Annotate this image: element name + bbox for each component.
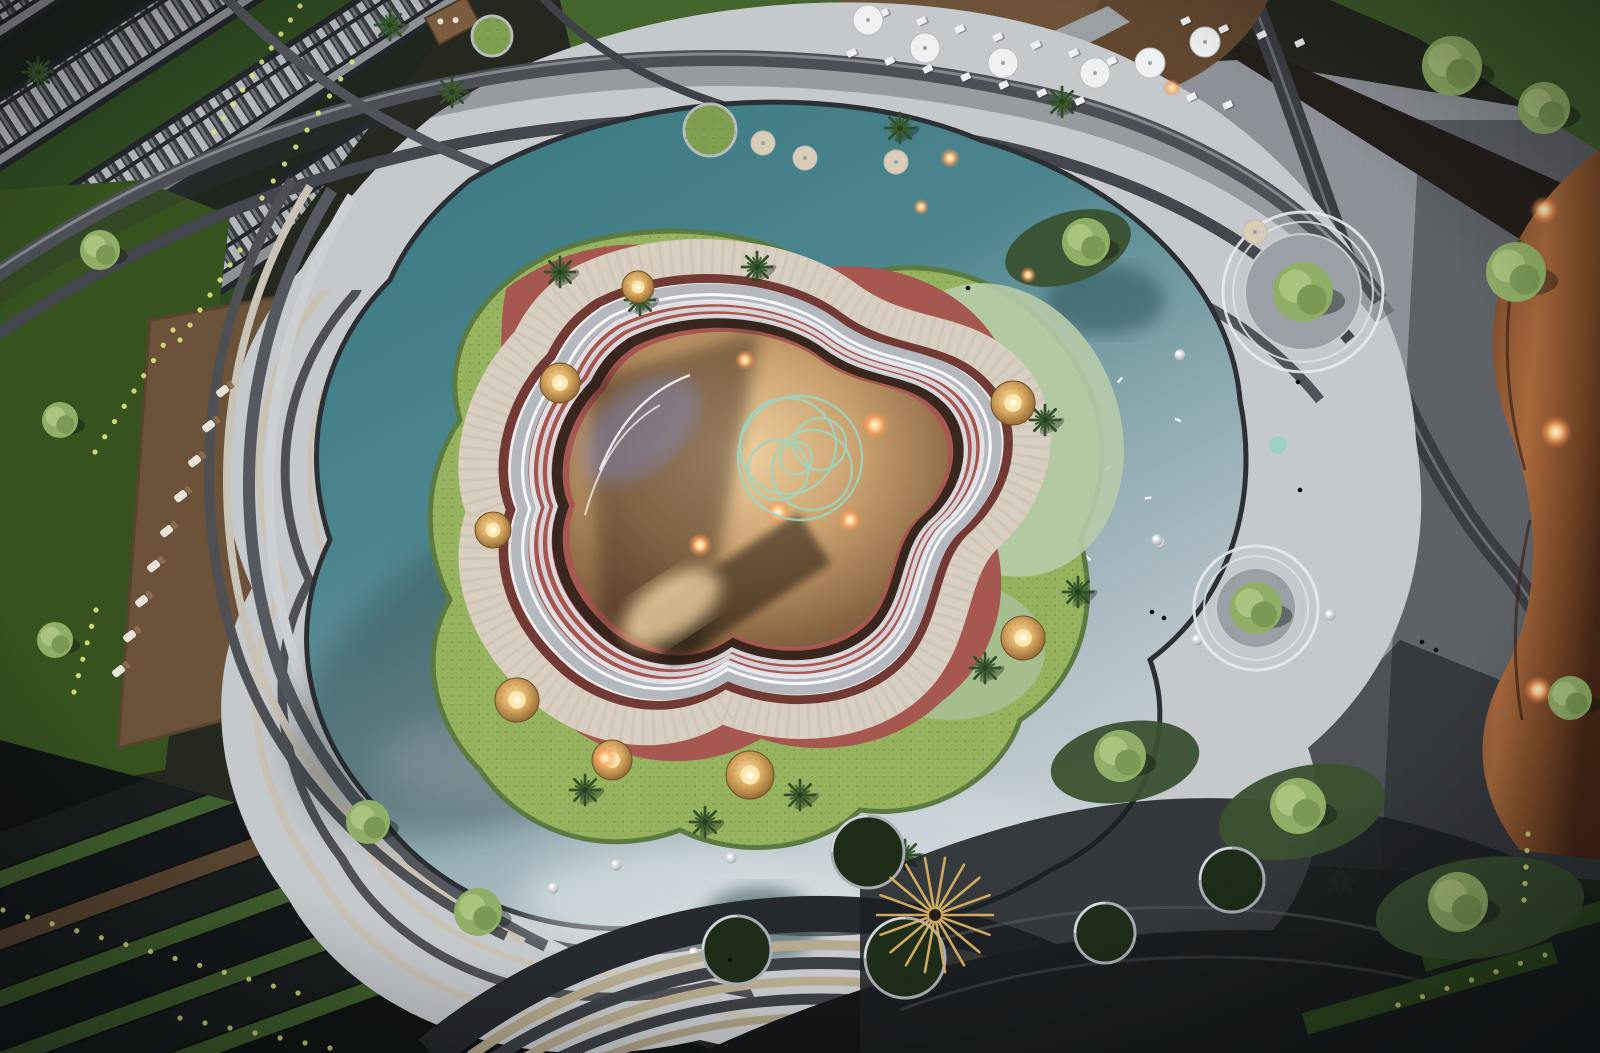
aerial-masterplan-render (0, 0, 1600, 1053)
dusk-vignette (0, 0, 1600, 1053)
scene-canvas (0, 0, 1600, 1053)
